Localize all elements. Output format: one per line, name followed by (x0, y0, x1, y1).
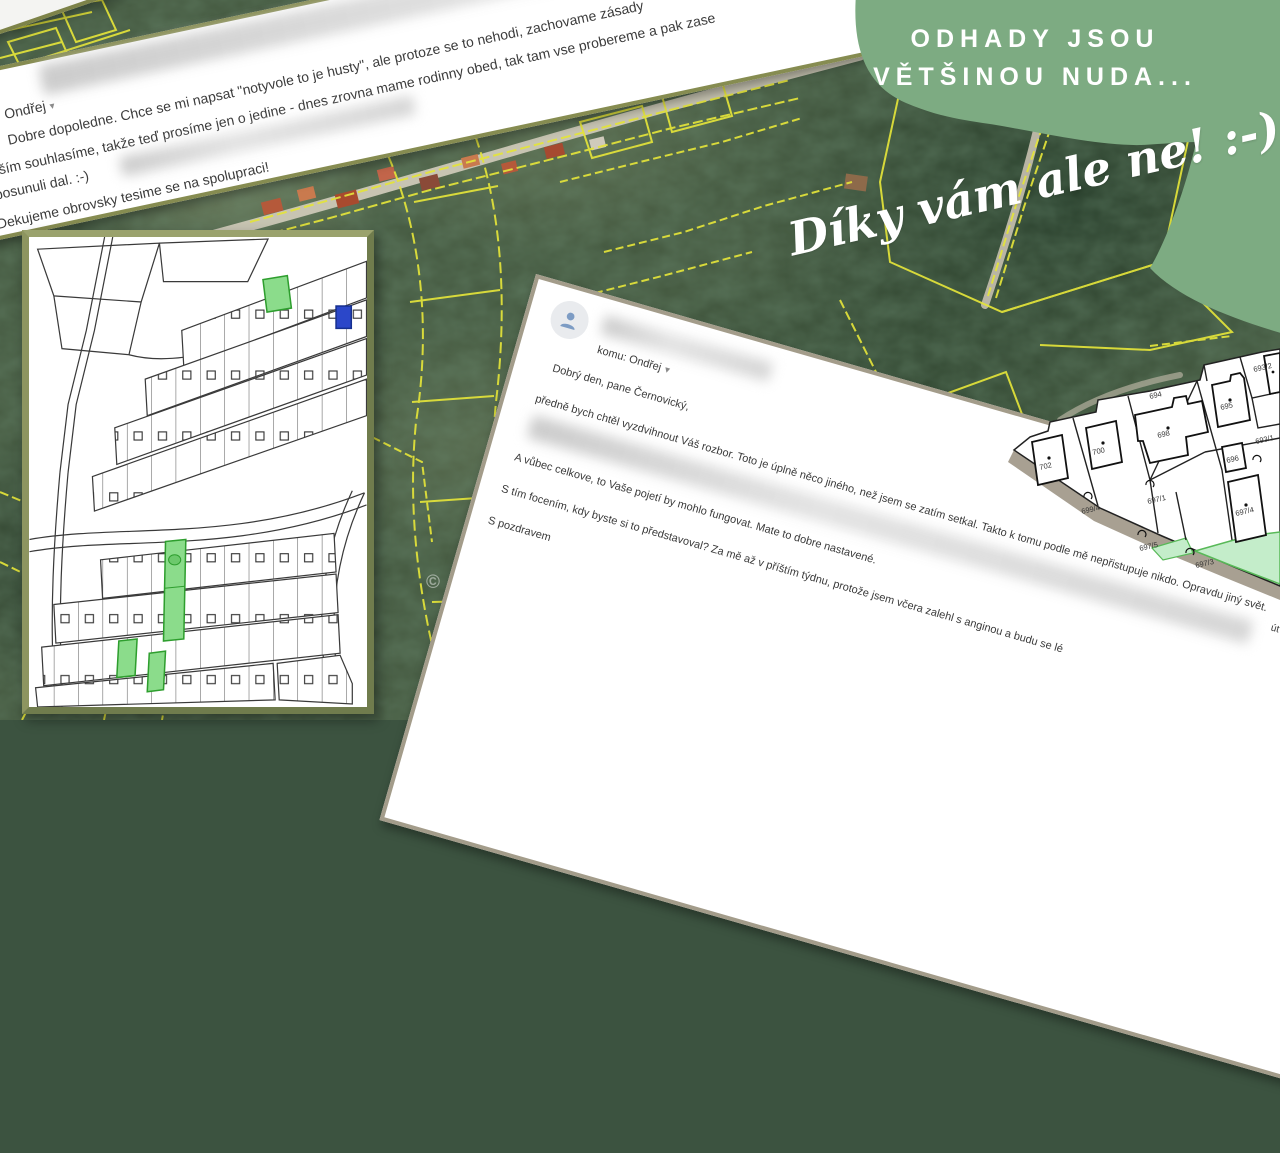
chevron-down-icon[interactable]: ▾ (659, 363, 671, 376)
email-closing: S pozdravem (487, 515, 553, 544)
chevron-down-icon[interactable]: ▾ (45, 101, 56, 114)
cadastral-fragment: 702 700 698 695 696 694 693/2 693/1 699/… (990, 335, 1280, 665)
blob-title-line2: VĚTŠINOU NUDA... (845, 58, 1225, 96)
sender-row: Ondřej▾ (3, 96, 56, 122)
person-icon (556, 306, 583, 333)
blob-title-line1: ODHADY JSOU (845, 20, 1225, 58)
sender-name: Ondřej (3, 98, 47, 122)
cadastral-map-overview (22, 230, 374, 714)
overview-blue-marker (336, 306, 351, 328)
avatar (546, 297, 593, 344)
blob-title: ODHADY JSOU VĚTŠINOU NUDA... (845, 20, 1225, 96)
